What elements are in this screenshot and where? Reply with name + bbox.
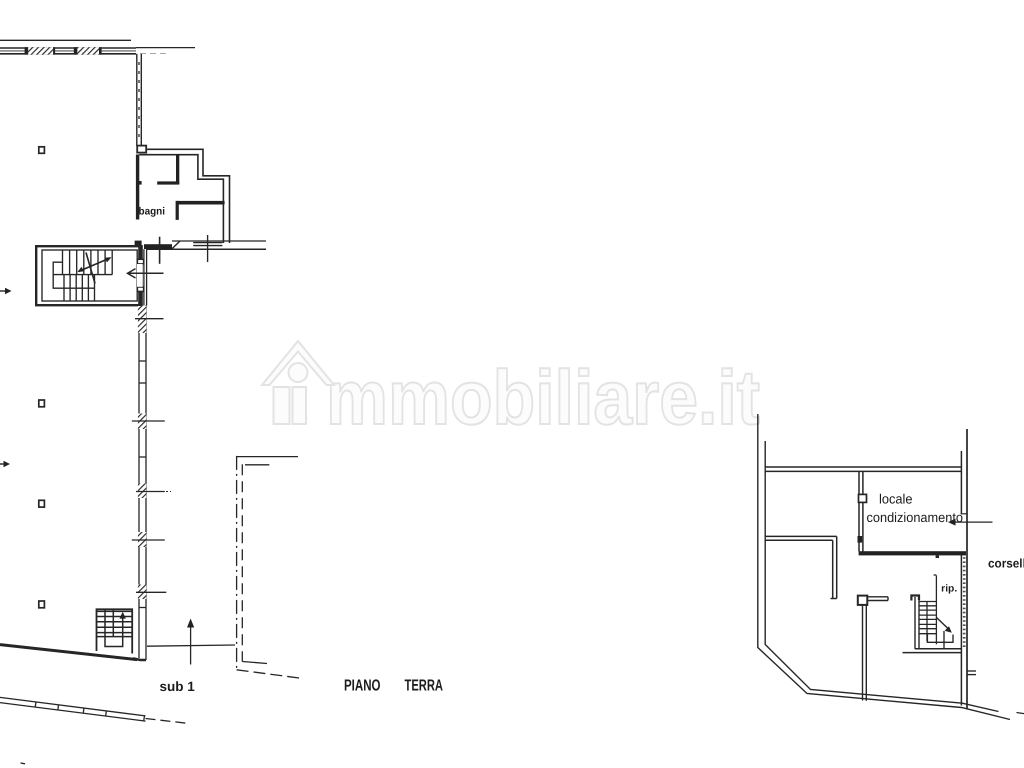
svg-text:condizionamento: condizionamento xyxy=(867,510,964,525)
svg-text:rip.: rip. xyxy=(941,583,957,594)
svg-text:sub 1: sub 1 xyxy=(160,679,196,694)
svg-text:PIANO: PIANO xyxy=(344,678,381,695)
svg-text:locale: locale xyxy=(879,492,913,507)
svg-text:TERRA: TERRA xyxy=(405,678,444,695)
svg-text:bagni: bagni xyxy=(139,206,166,218)
svg-text:mmobiliare.it: mmobiliare.it xyxy=(326,355,760,441)
svg-text:corsello: corsello xyxy=(988,557,1024,571)
